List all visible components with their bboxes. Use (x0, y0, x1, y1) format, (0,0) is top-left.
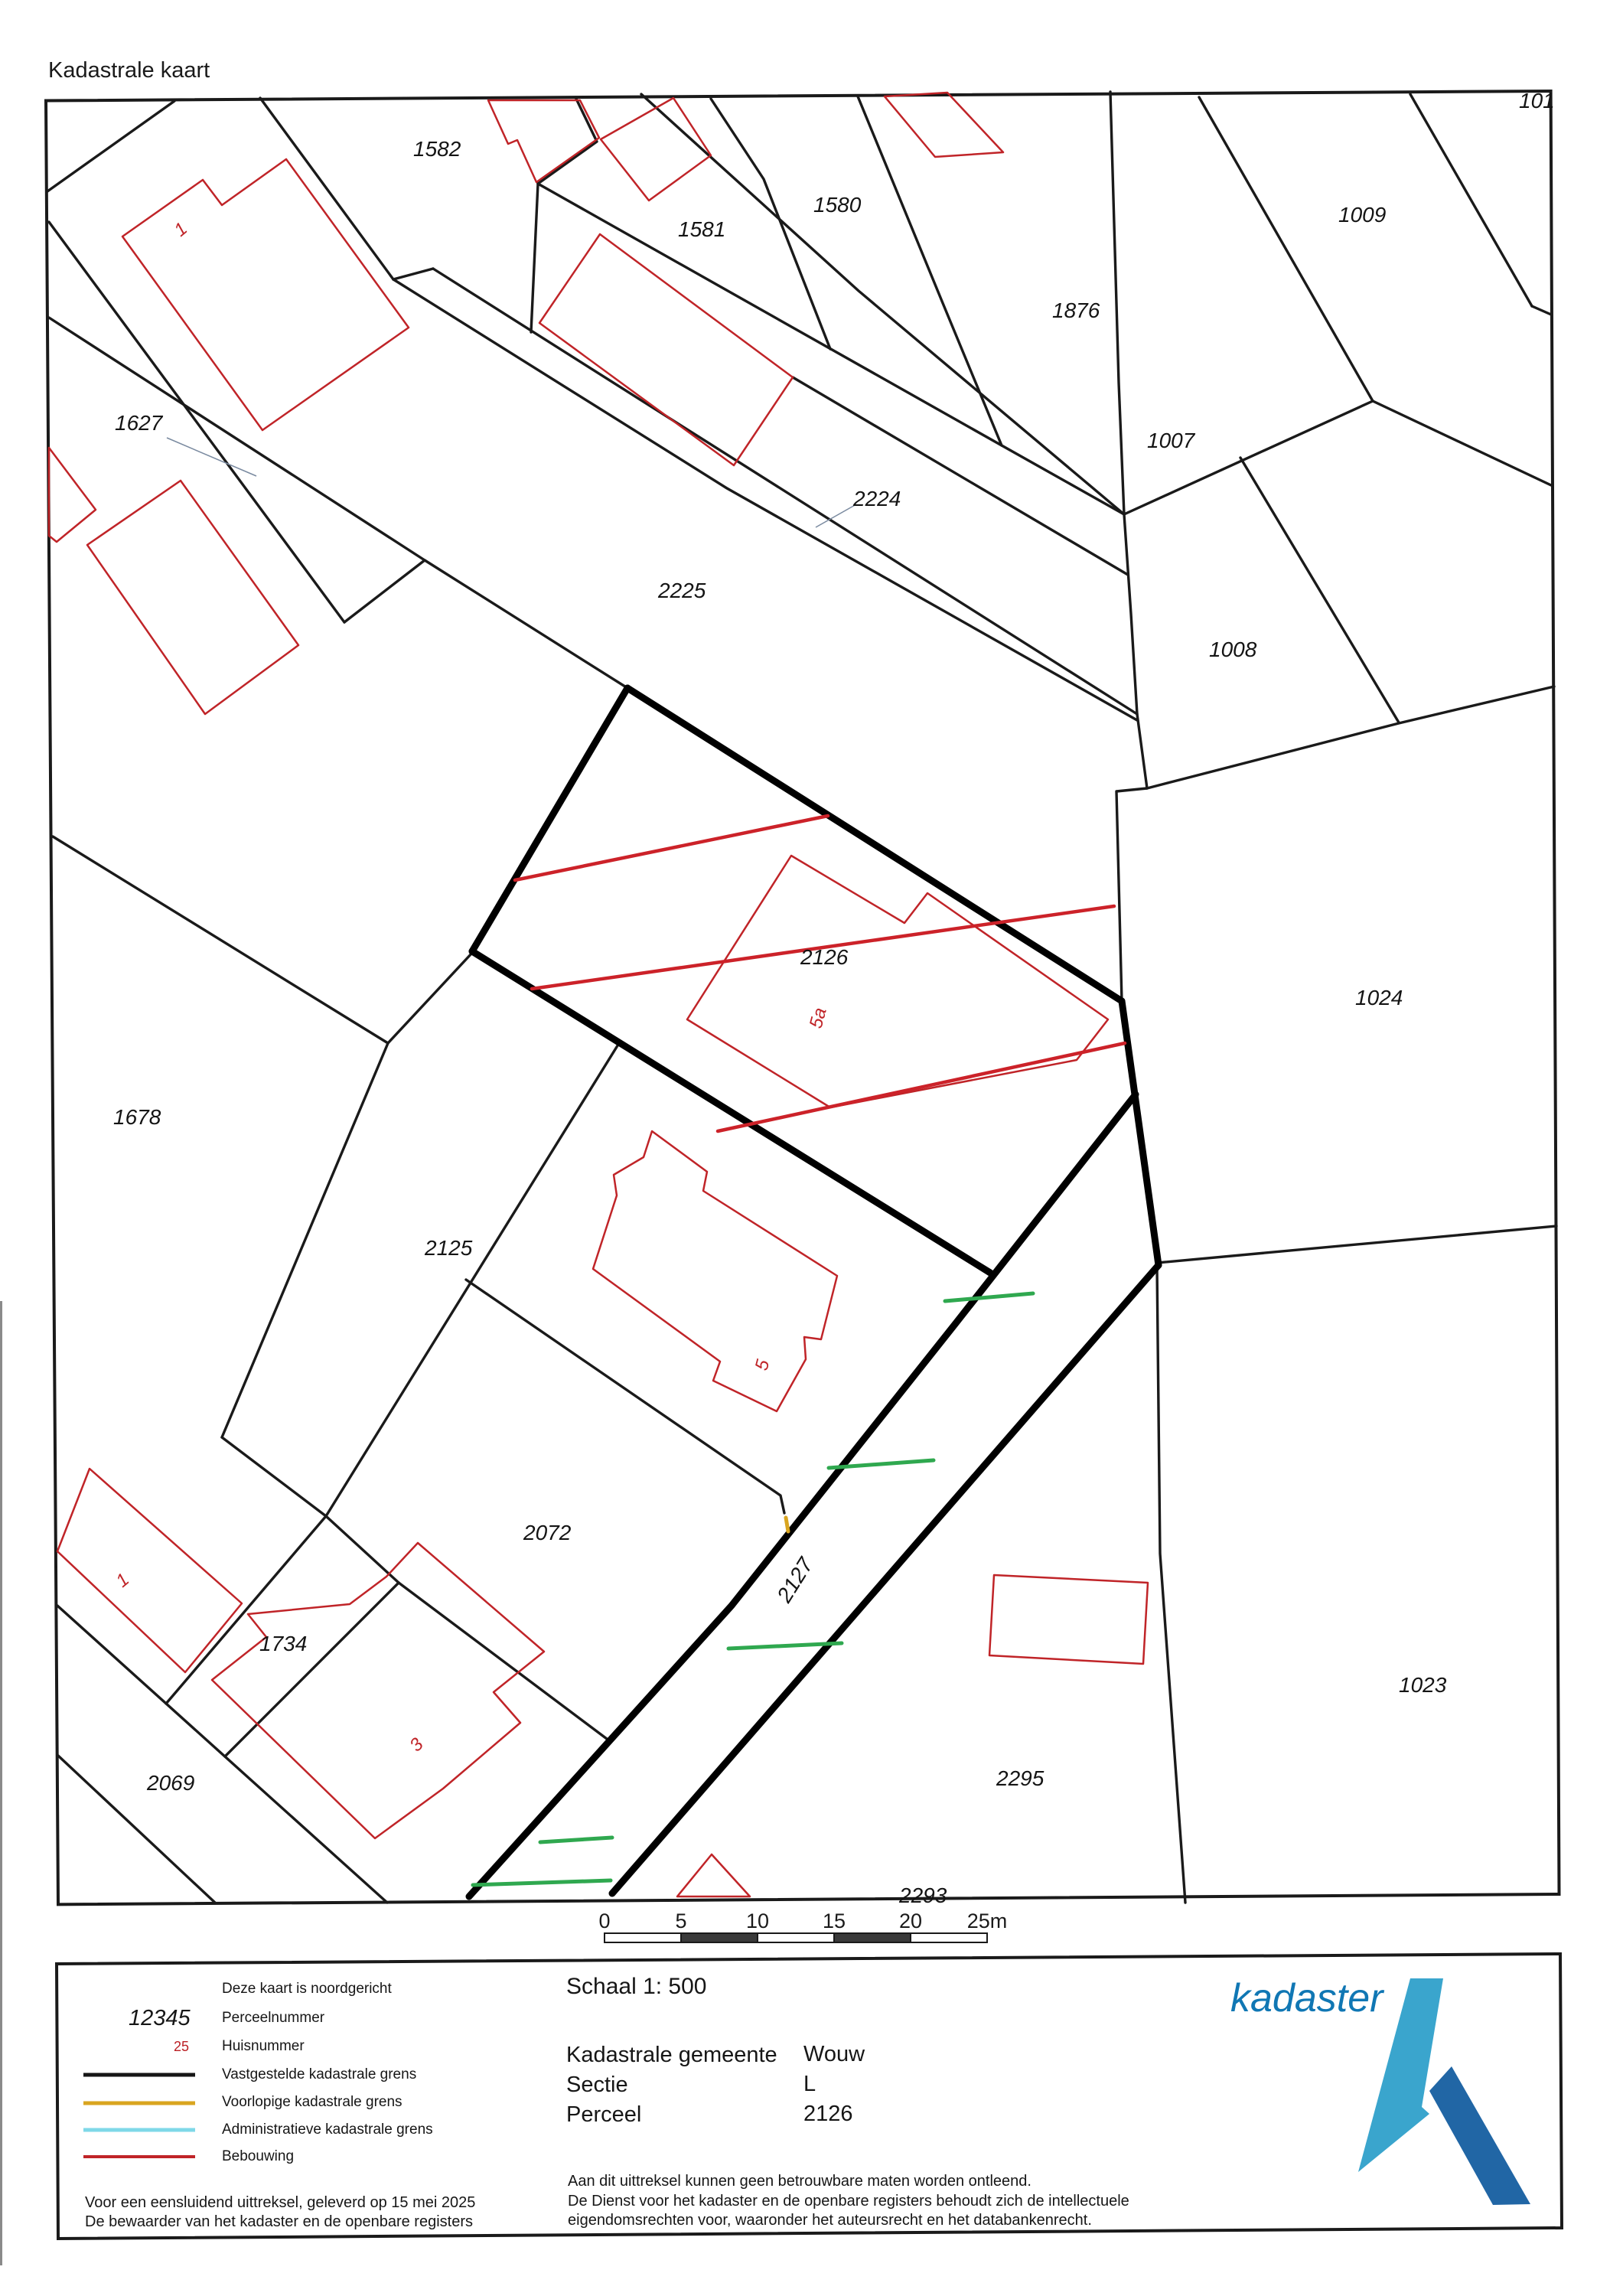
svg-text:1582: 1582 (413, 137, 461, 161)
svg-text:101: 101 (1519, 89, 1555, 113)
svg-text:De Dienst voor het kadaster en: De Dienst voor het kadaster en de openba… (568, 2193, 1129, 2210)
svg-text:Sectie: Sectie (566, 2073, 628, 2097)
svg-text:1876: 1876 (1052, 298, 1100, 322)
svg-text:Bebouwing: Bebouwing (222, 2148, 294, 2164)
svg-text:2126: 2126 (803, 2102, 853, 2126)
svg-text:Perceel: Perceel (566, 2102, 641, 2127)
svg-text:1627: 1627 (115, 411, 164, 435)
svg-text:Voorlopige kadastrale grens: Voorlopige kadastrale grens (222, 2094, 402, 2110)
svg-text:L: L (803, 2072, 816, 2096)
svg-text:2295: 2295 (996, 1766, 1045, 1790)
svg-text:1581: 1581 (678, 217, 725, 241)
svg-text:10: 10 (746, 1910, 769, 1932)
svg-text:De bewaarder van het kadaster: De bewaarder van het kadaster en de open… (85, 2213, 473, 2230)
svg-text:Schaal 1: 500: Schaal 1: 500 (566, 1974, 706, 1999)
svg-text:2125: 2125 (424, 1236, 473, 1260)
svg-text:20: 20 (899, 1910, 922, 1932)
svg-text:2225: 2225 (657, 579, 706, 602)
svg-text:12345: 12345 (129, 2006, 191, 2030)
svg-text:Wouw: Wouw (803, 2042, 865, 2066)
svg-text:2224: 2224 (852, 487, 901, 510)
svg-text:eigendomsrechten voor, waarond: eigendomsrechten voor, waaronder het aut… (568, 2212, 1092, 2229)
svg-text:Vastgestelde kadastrale grens: Vastgestelde kadastrale grens (222, 2066, 416, 2082)
svg-text:Kadastrale gemeente: Kadastrale gemeente (566, 2043, 777, 2067)
svg-text:Huisnummer: Huisnummer (222, 2038, 305, 2054)
svg-text:1023: 1023 (1399, 1673, 1447, 1697)
svg-text:1009: 1009 (1338, 203, 1386, 227)
svg-text:15: 15 (823, 1910, 846, 1932)
svg-text:1007: 1007 (1147, 429, 1196, 452)
svg-text:2072: 2072 (523, 1521, 572, 1544)
svg-text:1580: 1580 (813, 193, 862, 217)
svg-text:1678: 1678 (113, 1105, 161, 1129)
svg-text:25: 25 (174, 2039, 189, 2054)
svg-text:2069: 2069 (146, 1771, 194, 1795)
svg-text:Voor een eensluidend uittrekse: Voor een eensluidend uittreksel, gelever… (85, 2194, 475, 2211)
svg-text:Perceelnummer: Perceelnummer (222, 2010, 325, 2026)
svg-text:2126: 2126 (800, 945, 849, 969)
svg-text:5: 5 (675, 1910, 686, 1932)
svg-text:2293: 2293 (898, 1883, 947, 1907)
svg-text:Aan dit uittreksel kunnen geen: Aan dit uittreksel kunnen geen betrouwba… (568, 2173, 1031, 2190)
svg-text:kadaster: kadaster (1230, 1976, 1385, 2020)
svg-text:25m: 25m (967, 1910, 1008, 1932)
svg-text:Administratieve kadastrale gre: Administratieve kadastrale grens (222, 2122, 433, 2138)
svg-text:1734: 1734 (259, 1632, 307, 1655)
svg-text:1008: 1008 (1209, 638, 1257, 661)
svg-text:Deze kaart is noordgericht: Deze kaart is noordgericht (222, 1981, 392, 1997)
svg-text:0: 0 (598, 1910, 610, 1932)
svg-text:1024: 1024 (1355, 986, 1403, 1009)
